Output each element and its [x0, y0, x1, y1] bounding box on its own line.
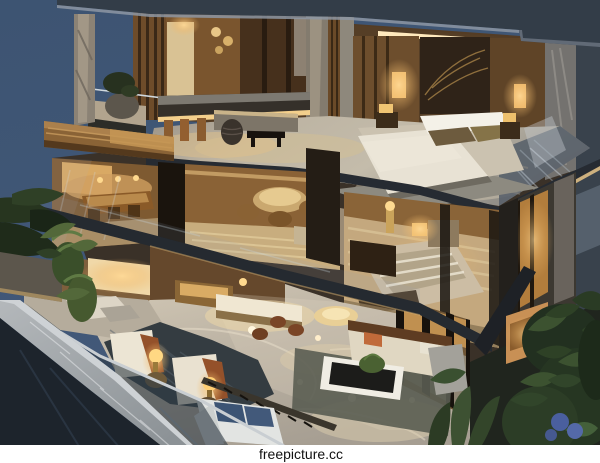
svg-text:freepicture.cc: freepicture.cc [259, 446, 343, 462]
